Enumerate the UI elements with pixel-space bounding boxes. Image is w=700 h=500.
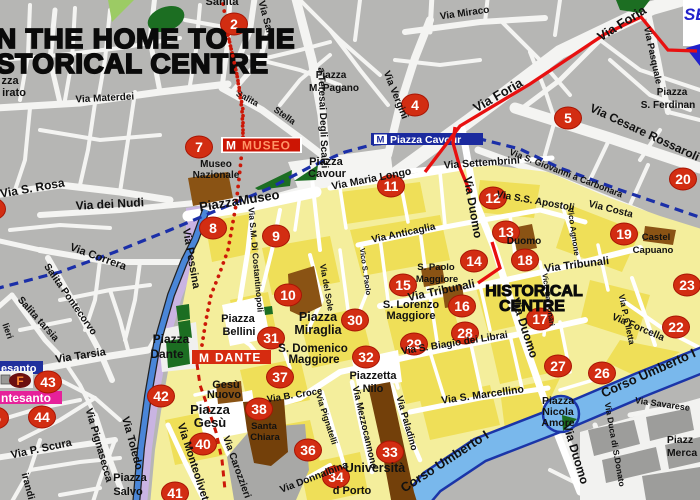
svg-text:Chiara: Chiara — [250, 432, 280, 443]
svg-text:Maggiore: Maggiore — [416, 274, 458, 285]
svg-text:42: 42 — [153, 388, 169, 404]
svg-text:43: 43 — [40, 374, 56, 390]
svg-text:18: 18 — [517, 252, 533, 268]
svg-text:8: 8 — [209, 220, 217, 236]
svg-text:38: 38 — [251, 401, 267, 417]
svg-text:irato: irato — [2, 87, 26, 99]
svg-text:23: 23 — [679, 277, 695, 293]
svg-text:41: 41 — [167, 485, 183, 500]
svg-text:15: 15 — [395, 277, 411, 293]
svg-text:Piazzetta: Piazzetta — [349, 370, 397, 382]
svg-text:32: 32 — [358, 349, 374, 365]
svg-text:Capuano: Capuano — [633, 245, 674, 256]
svg-text:5: 5 — [564, 110, 572, 126]
svg-text:36: 36 — [300, 442, 316, 458]
svg-text:Nuovo: Nuovo — [207, 389, 242, 401]
svg-text:Piazza: Piazza — [309, 156, 344, 168]
svg-text:Nazionale: Nazionale — [193, 170, 240, 181]
svg-text:Piazza: Piazza — [299, 310, 338, 324]
svg-text:Merca: Merca — [667, 447, 698, 459]
svg-text:19: 19 — [616, 226, 632, 242]
svg-text:9: 9 — [272, 228, 280, 244]
svg-text:44: 44 — [34, 409, 50, 425]
svg-text:33: 33 — [382, 444, 398, 460]
svg-text:M: M — [199, 351, 209, 365]
svg-text:Piazza: Piazza — [113, 472, 148, 484]
svg-text:S. Ferdinan: S. Ferdinan — [641, 100, 695, 111]
svg-text:20: 20 — [675, 171, 691, 187]
svg-text:7: 7 — [195, 139, 203, 155]
svg-text:16: 16 — [454, 298, 470, 314]
svg-text:Piazz: Piazz — [667, 434, 693, 446]
svg-text:Piazza: Piazza — [153, 332, 190, 346]
svg-text:Piazza: Piazza — [657, 87, 688, 98]
svg-text:ntesanto: ntesanto — [1, 391, 51, 405]
svg-text:Duomo: Duomo — [507, 236, 541, 247]
svg-text:Dante: Dante — [150, 347, 184, 361]
svg-text:Amore: Amore — [541, 417, 574, 429]
svg-text:27: 27 — [550, 358, 566, 374]
svg-text:S. Paolo: S. Paolo — [417, 262, 455, 273]
svg-text:M. Pagano: M. Pagano — [309, 83, 359, 94]
svg-text:Università: Università — [345, 461, 405, 475]
svg-text:30: 30 — [347, 312, 363, 328]
svg-text:CENTRE: CENTRE — [499, 298, 565, 315]
svg-text:Piazza: Piazza — [221, 313, 256, 325]
svg-text:Castel: Castel — [642, 232, 671, 243]
svg-text:DANTE: DANTE — [215, 351, 261, 365]
svg-text:MUSEO: MUSEO — [242, 139, 291, 153]
svg-text:14: 14 — [466, 253, 482, 269]
svg-text:Maggiore: Maggiore — [288, 354, 339, 366]
svg-text:40: 40 — [195, 436, 211, 452]
svg-text:Bellini: Bellini — [222, 326, 255, 338]
svg-text:STORICAL CENTRE: STORICAL CENTRE — [0, 48, 269, 79]
svg-text:SE: SE — [684, 5, 700, 24]
svg-text:Museo: Museo — [200, 159, 232, 170]
svg-text:Piazza: Piazza — [316, 70, 347, 81]
svg-text:M: M — [377, 135, 385, 146]
svg-text:F: F — [16, 374, 23, 388]
svg-text:Salvo: Salvo — [113, 486, 143, 498]
svg-text:10: 10 — [280, 287, 296, 303]
svg-text:Sanità: Sanità — [205, 0, 239, 8]
svg-text:4: 4 — [411, 97, 419, 113]
svg-text:M: M — [226, 139, 236, 153]
svg-text:d Porto: d Porto — [333, 485, 372, 497]
svg-text:Miraglia: Miraglia — [294, 323, 342, 337]
svg-text:Gesù: Gesù — [194, 415, 227, 430]
svg-text:22: 22 — [668, 319, 684, 335]
svg-text:37: 37 — [272, 369, 288, 385]
svg-text:31: 31 — [263, 330, 279, 346]
svg-text:Maggiore: Maggiore — [387, 310, 436, 322]
svg-text:Santa: Santa — [251, 421, 278, 432]
svg-text:Nilo: Nilo — [363, 383, 384, 395]
svg-text:26: 26 — [594, 365, 610, 381]
